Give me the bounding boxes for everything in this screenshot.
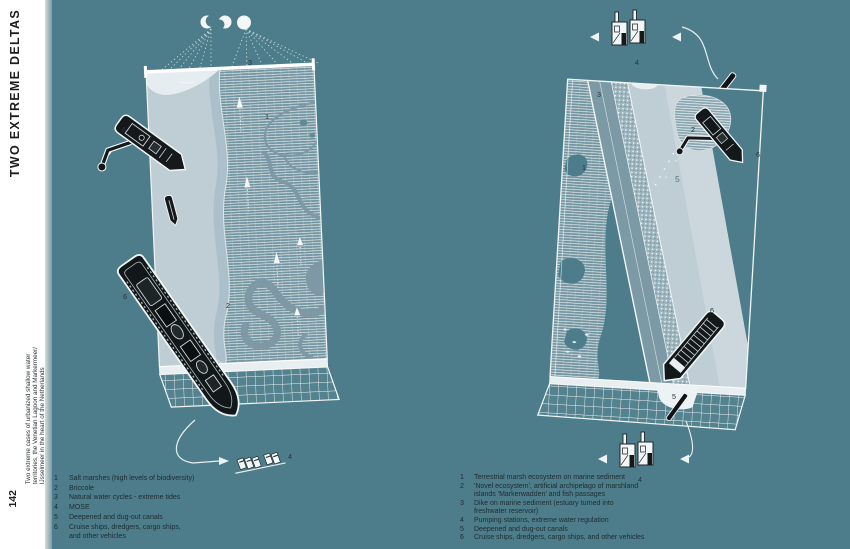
pumping-station-icon-bottom [598, 432, 689, 467]
legend-number: 2 [460, 483, 474, 500]
markermeer-block [538, 73, 767, 431]
pumping-station-icon-top [590, 10, 681, 45]
legend-number: 1 [54, 474, 69, 484]
label-tides: 3 [248, 58, 252, 67]
page-gutter-shadow [45, 0, 52, 549]
label-marsh: 1 [582, 163, 586, 172]
legend-number: 4 [460, 517, 474, 526]
legend-item: 1 Salt marshes (high levels of biodivers… [54, 474, 304, 484]
legend-number: 5 [460, 526, 474, 535]
legend-item: 4 Pumping stations, extreme water regula… [460, 517, 760, 526]
label-markerwadden: 2 [691, 125, 695, 134]
arrow-right-icon [219, 457, 229, 465]
venetian-lagoon-figure: 3 1 2 6 6 5 4 [95, 8, 345, 500]
label-briccole: 2 [226, 301, 230, 310]
mose-barrier-icon [234, 452, 286, 474]
label-canal-section: 5 [672, 392, 676, 401]
legend-number: 5 [54, 513, 69, 523]
label-dredger: 6 [122, 125, 126, 134]
legend-venetian-lagoon: 1 Salt marshes (high levels of biodivers… [54, 474, 304, 542]
subtitle-line: territories, the Venetian Lagoon and Mar… [32, 347, 39, 484]
book-spread-page: { "page": { "background": "#4d7d8a" }, "… [0, 0, 850, 549]
subtitle-line: Two extreme cases of urbanized shallow w… [25, 347, 32, 484]
legend-item: 6 Cruise ships, dredgers, cargo ships,an… [54, 523, 304, 542]
legend-item: 2 Briccole [54, 484, 304, 494]
label-channel: 5 [675, 174, 680, 184]
legend-item: 5 Deepened and dug-out canals [460, 526, 760, 535]
page-subtitle: Two extreme cases of urbanized shallow w… [25, 347, 46, 484]
label-pumping-top: 4 [635, 58, 639, 67]
arrow-left-icon [598, 455, 607, 464]
label-cargo-ship: 6 [710, 306, 714, 315]
label-dike: 3 [597, 90, 601, 99]
legend-item: 5 Deepened and dug-out canals [54, 513, 304, 523]
legend-item: 4 MOSE [54, 503, 304, 513]
label-mose: 4 [288, 452, 292, 461]
lagoon-block [144, 58, 339, 408]
legend-item: 1 Terrestrial marsh ecosystem on marine … [460, 474, 760, 483]
top-bar-end-tick [312, 58, 316, 70]
label-cruise-ship: 6 [123, 292, 127, 301]
legend-item: 3 Dike on marine sediment (estuary turne… [460, 500, 760, 517]
legend-markermeer: 1 Terrestrial marsh ecosystem on marine … [460, 474, 760, 543]
arrow-left-icon [672, 33, 681, 42]
legend-number: 4 [54, 503, 69, 513]
sidebar: TWO EXTREME DELTAS Two extreme cases of … [0, 0, 45, 549]
label-dredger: 6 [756, 150, 760, 159]
label-salt-marshes: 1 [265, 112, 269, 121]
page-number: 142 [7, 490, 19, 508]
connector-line [682, 27, 718, 79]
top-bar-end-tick [144, 66, 148, 78]
label-canal: 5 [175, 380, 179, 389]
markermeer-figure: 4 3 1 2 5 6 6 5 4 [450, 5, 800, 505]
legend-number: 3 [54, 493, 69, 503]
legend-item: 3 Natural water cycles - extreme tides [54, 493, 304, 503]
legend-number: 2 [54, 484, 69, 494]
corner-marker [759, 85, 766, 92]
page-title: TWO EXTREME DELTAS [8, 9, 22, 177]
legend-number: 6 [54, 523, 69, 542]
connector-line [176, 420, 219, 463]
legend-item: 6 Cruise ships, dredgers, cargo ships, a… [460, 534, 760, 543]
arrow-left-icon [590, 33, 599, 42]
arrow-left-icon [680, 455, 689, 464]
legend-number: 6 [460, 534, 474, 543]
moon-phases-icon [201, 15, 252, 29]
legend-number: 3 [460, 500, 474, 517]
legend-item: 2 'Novel ecosystem', artificial archipel… [460, 483, 760, 500]
legend-number: 1 [460, 474, 474, 483]
